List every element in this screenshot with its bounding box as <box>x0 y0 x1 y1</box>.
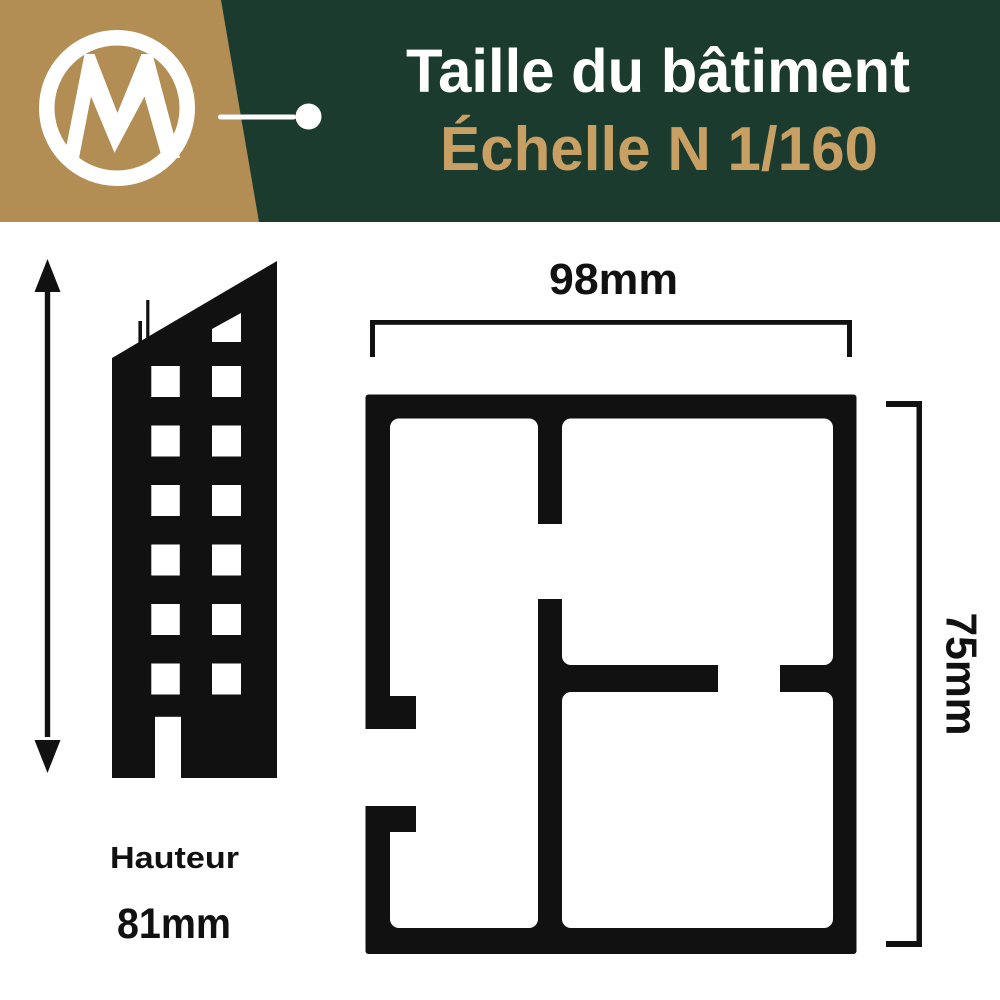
svg-text:81mm: 81mm <box>117 900 231 948</box>
svg-text:Hauteur: Hauteur <box>110 841 239 875</box>
svg-text:75mm: 75mm <box>937 613 986 736</box>
svg-text:Taille du bâtiment: Taille du bâtiment <box>406 37 910 105</box>
svg-text:Échelle N 1/160: Échelle N 1/160 <box>440 115 878 184</box>
svg-text:98mm: 98mm <box>549 255 678 304</box>
